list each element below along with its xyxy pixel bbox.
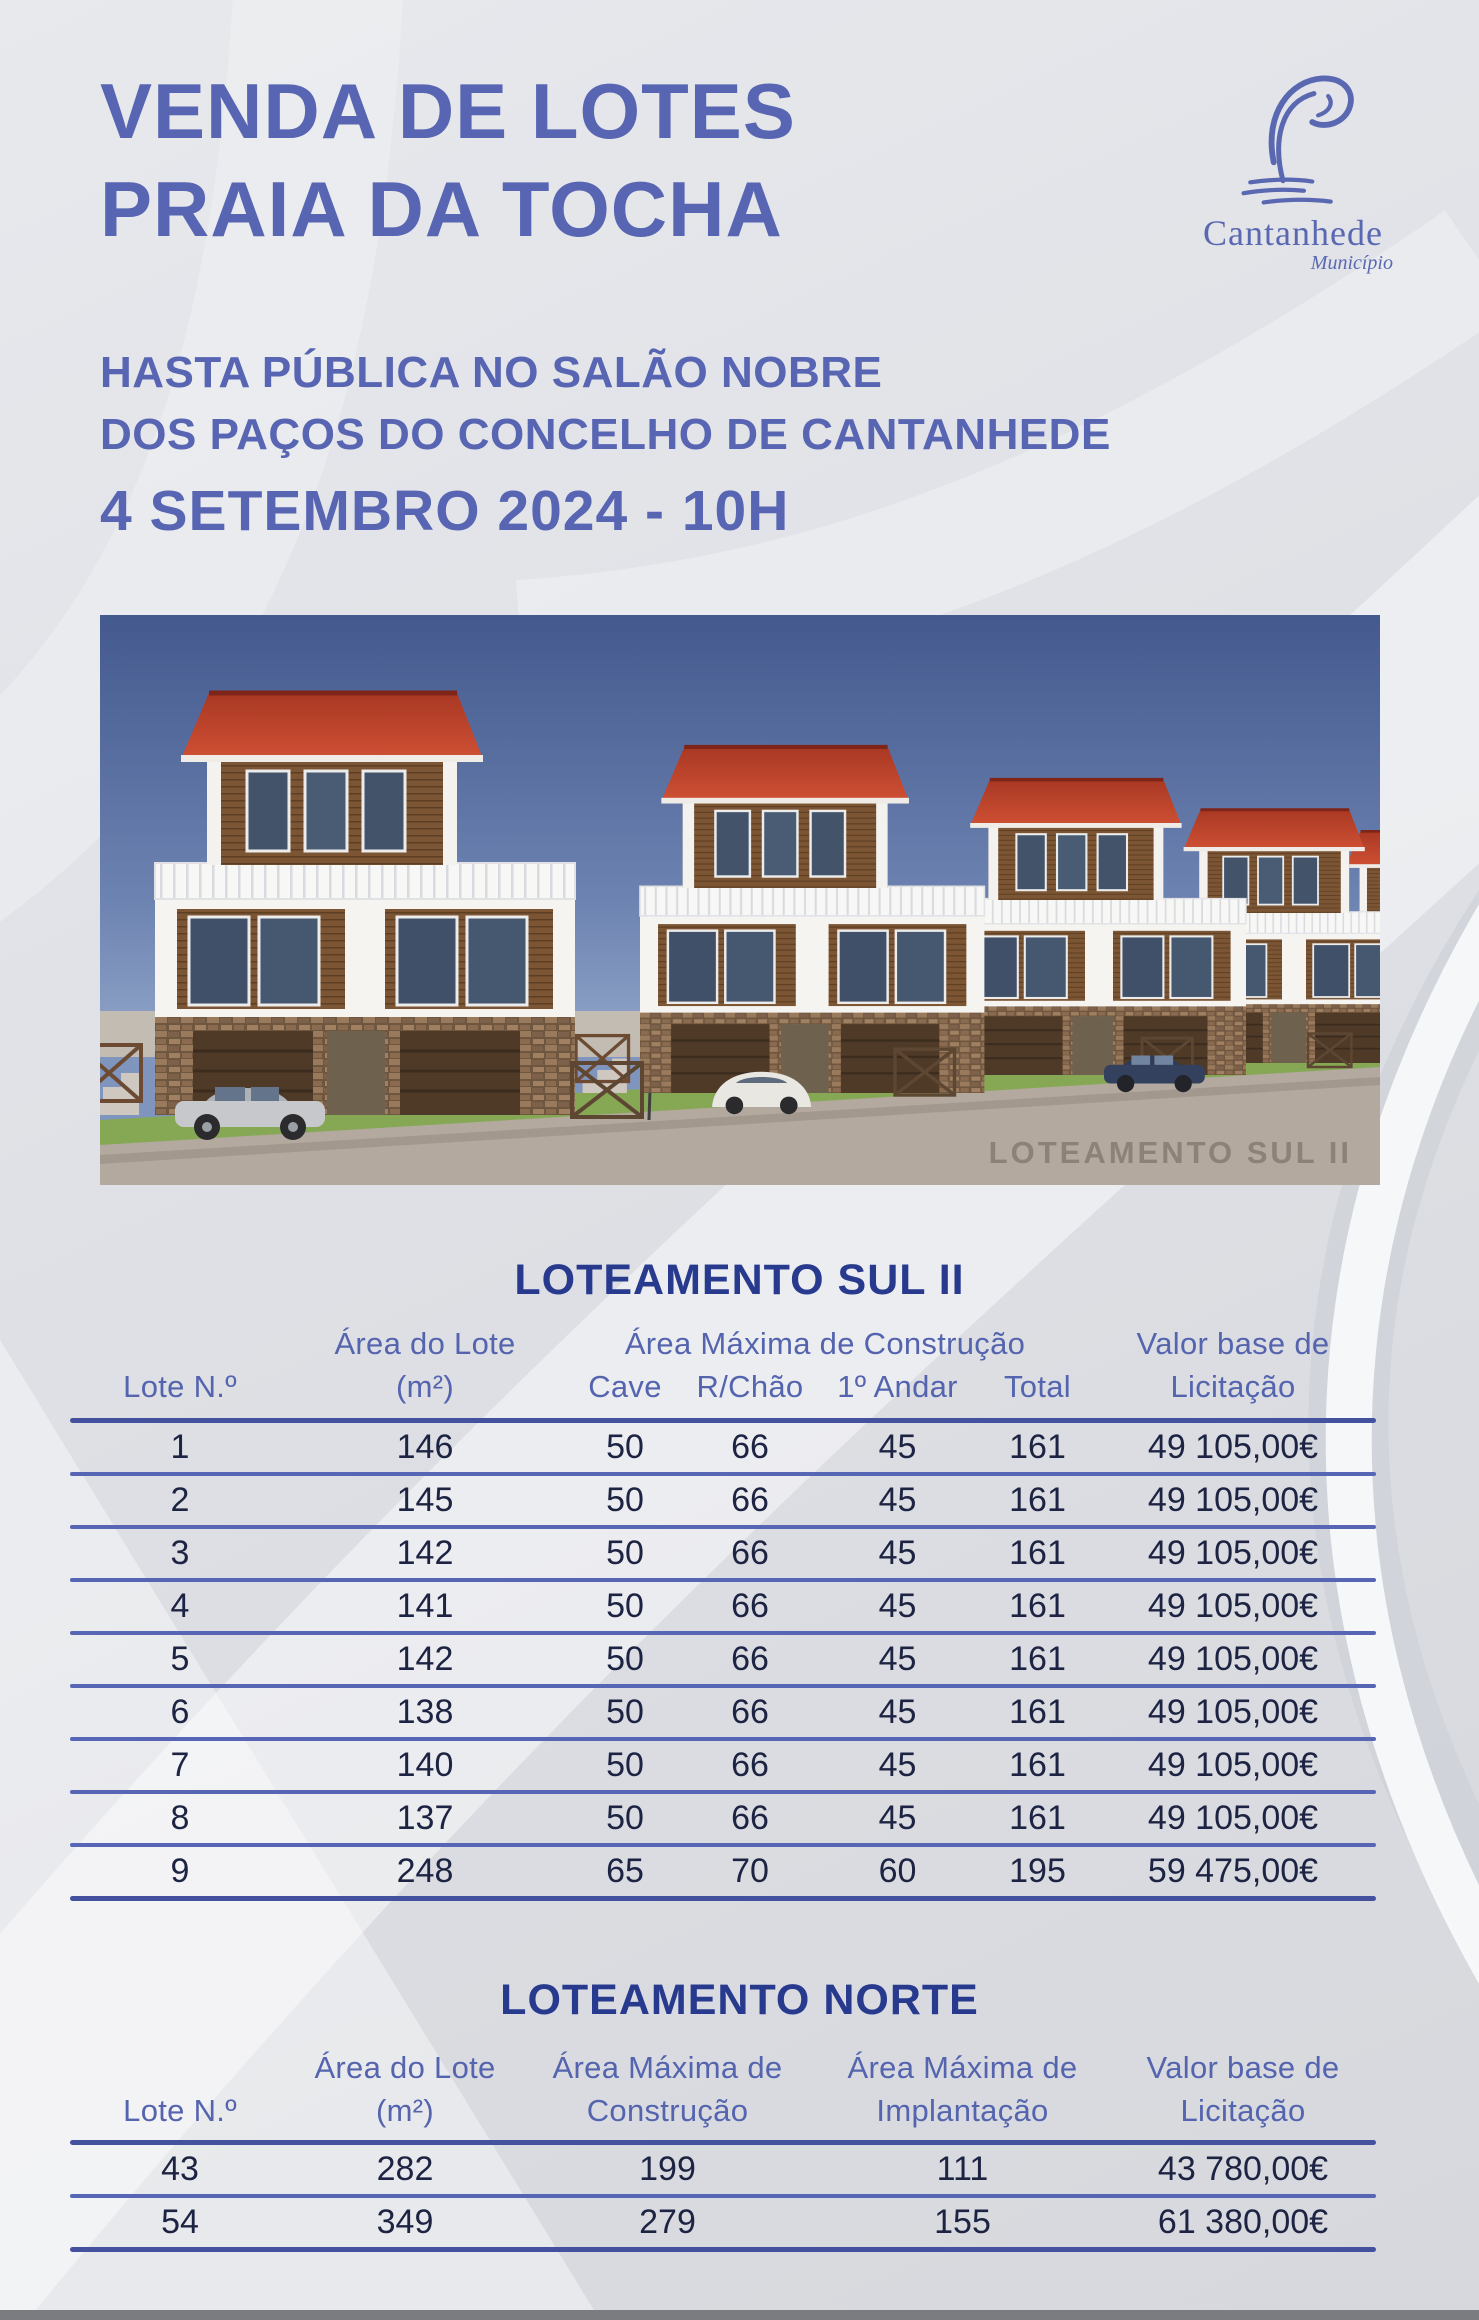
cell-valor: 59 475,00€	[1090, 1847, 1376, 1896]
cell-area: 349	[290, 2198, 520, 2247]
cell-area: 142	[290, 1529, 560, 1578]
cell-rchao: 66	[690, 1476, 810, 1525]
logo-name: Cantanhede	[1183, 212, 1403, 254]
col-construcao-2: Construção	[520, 2089, 815, 2132]
houses-render-graphic: LOTEAMENTO SUL II	[100, 615, 1380, 1185]
col-lote: Lote N.º	[70, 2089, 290, 2132]
table-row: 54 349 279 155 61 380,00€	[70, 2198, 1376, 2247]
cell-andar: 45	[810, 1529, 985, 1578]
table-row: 43 282 199 111 43 780,00€	[70, 2145, 1376, 2194]
col-group-construcao: Área Máxima de Construção	[560, 1322, 1090, 1365]
cell-lote: 1	[70, 1423, 290, 1472]
col-implantacao: Área Máxima de	[815, 2046, 1110, 2089]
cell-valor: 49 105,00€	[1090, 1794, 1376, 1843]
cell-rchao: 66	[690, 1688, 810, 1737]
development-photo: LOTEAMENTO SUL II	[100, 615, 1380, 1185]
cell-andar: 45	[810, 1476, 985, 1525]
col-licitacao: Licitação	[1110, 2089, 1376, 2132]
cell-implantacao: 155	[815, 2198, 1110, 2247]
cell-total: 161	[985, 1741, 1090, 1790]
cell-andar: 45	[810, 1423, 985, 1472]
cell-cave: 50	[560, 1476, 690, 1525]
cell-area: 145	[290, 1476, 560, 1525]
cell-total: 161	[985, 1582, 1090, 1631]
cell-rchao: 66	[690, 1794, 810, 1843]
cell-andar: 45	[810, 1688, 985, 1737]
col-area-unit: (m²)	[290, 2089, 520, 2132]
table2-title: LOTEAMENTO NORTE	[0, 1976, 1479, 2025]
col-construcao: Área Máxima de	[520, 2046, 815, 2089]
spacer	[70, 1322, 290, 1365]
cell-area: 282	[290, 2145, 520, 2194]
col-valor: Valor base de	[1110, 2046, 1376, 2089]
cell-area: 248	[290, 1847, 560, 1896]
bottom-bar	[0, 2310, 1479, 2320]
cell-andar: 60	[810, 1847, 985, 1896]
municipality-logo: Cantanhede Município	[1183, 55, 1403, 275]
table-end-rule	[70, 1896, 1376, 1901]
table2-header-row-2: Lote N.º (m²) Construção Implantação Lic…	[70, 2089, 1376, 2132]
cell-cave: 65	[560, 1847, 690, 1896]
cell-total: 161	[985, 1794, 1090, 1843]
table-row: 3 142 50 66 45 161 49 105,00€	[70, 1529, 1376, 1578]
cell-cave: 50	[560, 1741, 690, 1790]
cantanhede-logo-icon	[1228, 55, 1358, 210]
table-row: 7 140 50 66 45 161 49 105,00€	[70, 1741, 1376, 1790]
table-row: 5 142 50 66 45 161 49 105,00€	[70, 1635, 1376, 1684]
table-row: 4 141 50 66 45 161 49 105,00€	[70, 1582, 1376, 1631]
cell-andar: 45	[810, 1635, 985, 1684]
subtitle-line-1: HASTA PÚBLICA NO SALÃO NOBRE	[100, 342, 1111, 404]
cell-area: 137	[290, 1794, 560, 1843]
cell-area: 142	[290, 1635, 560, 1684]
cell-valor: 49 105,00€	[1090, 1582, 1376, 1631]
table-sul-ii: Área do Lote Área Máxima de Construção V…	[70, 1322, 1376, 1901]
cell-valor: 49 105,00€	[1090, 1688, 1376, 1737]
cell-valor: 43 780,00€	[1110, 2145, 1376, 2194]
table1-header-row-2: Lote N.º (m²) Cave R/Chão 1º Andar Total…	[70, 1365, 1376, 1408]
cell-rchao: 70	[690, 1847, 810, 1896]
cell-cave: 50	[560, 1688, 690, 1737]
table1-title: LOTEAMENTO SUL II	[0, 1256, 1479, 1305]
col-area-unit: (m²)	[290, 1365, 560, 1408]
table2-header-row-1: Área do Lote Área Máxima de Área Máxima …	[70, 2046, 1376, 2089]
cell-cave: 50	[560, 1794, 690, 1843]
cell-total: 161	[985, 1476, 1090, 1525]
cell-construcao: 199	[520, 2145, 815, 2194]
photo-caption: LOTEAMENTO SUL II	[989, 1135, 1352, 1170]
cell-lote: 43	[70, 2145, 290, 2194]
cell-area: 146	[290, 1423, 560, 1472]
table-norte: Área do Lote Área Máxima de Área Máxima …	[70, 2046, 1376, 2252]
col-valor: Valor base de	[1090, 1322, 1376, 1365]
event-subtitle: HASTA PÚBLICA NO SALÃO NOBRE DOS PAÇOS D…	[100, 342, 1111, 466]
col-area-lote: Área do Lote	[290, 1322, 560, 1365]
cell-rchao: 66	[690, 1423, 810, 1472]
cell-cave: 50	[560, 1423, 690, 1472]
col-lote: Lote N.º	[70, 1365, 290, 1408]
cell-lote: 2	[70, 1476, 290, 1525]
page-title: VENDA DE LOTES PRAIA DA TOCHA	[100, 62, 796, 258]
subcol-rchao: R/Chão	[690, 1365, 810, 1408]
table-row: 9 248 65 70 60 195 59 475,00€	[70, 1847, 1376, 1896]
cell-rchao: 66	[690, 1582, 810, 1631]
cell-cave: 50	[560, 1635, 690, 1684]
cell-cave: 50	[560, 1582, 690, 1631]
cell-lote: 6	[70, 1688, 290, 1737]
cell-valor: 49 105,00€	[1090, 1635, 1376, 1684]
cell-total: 161	[985, 1635, 1090, 1684]
cell-rchao: 66	[690, 1741, 810, 1790]
subcol-andar: 1º Andar	[810, 1365, 985, 1408]
cell-valor: 49 105,00€	[1090, 1741, 1376, 1790]
poster: VENDA DE LOTES PRAIA DA TOCHA Cantanhede…	[0, 0, 1479, 2320]
cell-andar: 45	[810, 1741, 985, 1790]
title-line-1: VENDA DE LOTES	[100, 62, 796, 160]
cell-valor: 49 105,00€	[1090, 1529, 1376, 1578]
cell-area: 140	[290, 1741, 560, 1790]
subcol-cave: Cave	[560, 1365, 690, 1408]
cell-lote: 5	[70, 1635, 290, 1684]
table-end-rule	[70, 2247, 1376, 2252]
table-row: 6 138 50 66 45 161 49 105,00€	[70, 1688, 1376, 1737]
cell-andar: 45	[810, 1794, 985, 1843]
cell-lote: 9	[70, 1847, 290, 1896]
table-row: 1 146 50 66 45 161 49 105,00€	[70, 1423, 1376, 1472]
cell-implantacao: 111	[815, 2145, 1110, 2194]
cell-valor: 61 380,00€	[1110, 2198, 1376, 2247]
event-date: 4 SETEMBRO 2024 - 10H	[100, 478, 789, 544]
col-licitacao: Licitação	[1090, 1365, 1376, 1408]
cell-rchao: 66	[690, 1529, 810, 1578]
cell-area: 141	[290, 1582, 560, 1631]
cell-area: 138	[290, 1688, 560, 1737]
spacer	[70, 2046, 290, 2089]
cell-lote: 8	[70, 1794, 290, 1843]
cell-total: 161	[985, 1529, 1090, 1578]
cell-total: 161	[985, 1688, 1090, 1737]
cell-rchao: 66	[690, 1635, 810, 1684]
cell-andar: 45	[810, 1582, 985, 1631]
col-area-lote: Área do Lote	[290, 2046, 520, 2089]
cell-construcao: 279	[520, 2198, 815, 2247]
logo-subtitle: Município	[1183, 252, 1403, 275]
cell-lote: 4	[70, 1582, 290, 1631]
table1-header-row-1: Área do Lote Área Máxima de Construção V…	[70, 1322, 1376, 1365]
col-implantacao-2: Implantação	[815, 2089, 1110, 2132]
cell-lote: 3	[70, 1529, 290, 1578]
cell-total: 161	[985, 1423, 1090, 1472]
title-line-2: PRAIA DA TOCHA	[100, 160, 796, 258]
table-row: 2 145 50 66 45 161 49 105,00€	[70, 1476, 1376, 1525]
cell-valor: 49 105,00€	[1090, 1423, 1376, 1472]
cell-lote: 7	[70, 1741, 290, 1790]
subtitle-line-2: DOS PAÇOS DO CONCELHO DE CANTANHEDE	[100, 404, 1111, 466]
table-row: 8 137 50 66 45 161 49 105,00€	[70, 1794, 1376, 1843]
subcol-total: Total	[985, 1365, 1090, 1408]
cell-cave: 50	[560, 1529, 690, 1578]
cell-total: 195	[985, 1847, 1090, 1896]
cell-lote: 54	[70, 2198, 290, 2247]
cell-valor: 49 105,00€	[1090, 1476, 1376, 1525]
